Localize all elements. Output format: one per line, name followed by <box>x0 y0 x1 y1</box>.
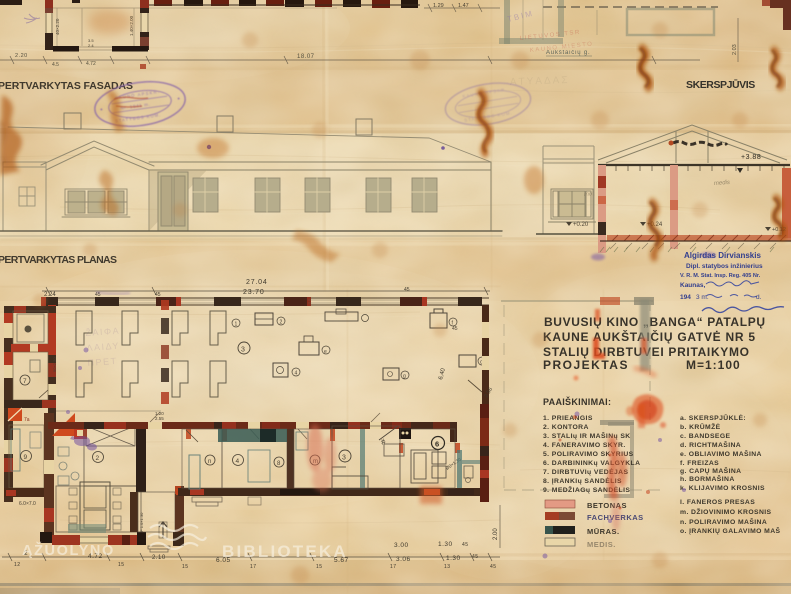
svg-text:90×2.20: 90×2.20 <box>52 357 57 372</box>
svg-text:PAAIŠKINIMAI:: PAAIŠKINIMAI: <box>543 396 611 407</box>
svg-text:3: 3 <box>241 347 245 354</box>
svg-text:17: 17 <box>390 564 397 570</box>
svg-text:1.29: 1.29 <box>433 3 444 9</box>
svg-text:1.30: 1.30 <box>446 555 461 562</box>
svg-text:l. FANEROS PRESAS: l. FANEROS PRESAS <box>680 499 755 506</box>
svg-text:SKERSPJŪVIS: SKERSPJŪVIS <box>686 79 756 91</box>
svg-text:k. KLIJAVIMO KROSNIS: k. KLIJAVIMO KROSNIS <box>680 485 765 492</box>
svg-text:15: 15 <box>118 562 125 568</box>
svg-text:1.47: 1.47 <box>458 3 469 9</box>
svg-text:n. POLIRAVIMO MAŠINA: n. POLIRAVIMO MAŠINA <box>680 517 767 526</box>
svg-text:2.55: 2.55 <box>155 416 164 421</box>
svg-text:f. FREIZAS: f. FREIZAS <box>680 460 719 467</box>
svg-text:BUVUSIŲ KINO „BANGA“ PATALPŲ: BUVUSIŲ KINO „BANGA“ PATALPŲ <box>544 315 766 329</box>
svg-text:3. STALIų IR MAŠINų SK: 3. STALIų IR MAŠINų SK <box>543 431 631 440</box>
svg-text:1. PRIEANGIS: 1. PRIEANGIS <box>543 415 593 422</box>
svg-text:+3.88: +3.88 <box>741 154 761 161</box>
svg-text:b. KRŪMŽĖ: b. KRŪMŽĖ <box>680 422 721 431</box>
svg-text:45: 45 <box>472 554 479 560</box>
svg-text:M=1:100: M=1:100 <box>686 358 741 372</box>
svg-text:45: 45 <box>452 326 458 332</box>
svg-text:7. DIRBTUVIų VEDĖJAS: 7. DIRBTUVIų VEDĖJAS <box>543 468 628 476</box>
svg-text:15: 15 <box>182 564 189 570</box>
svg-text:d.: d. <box>756 294 762 301</box>
svg-text:m. DŽIOVINIMO KROSNIS: m. DŽIOVINIMO KROSNIS <box>680 507 772 516</box>
svg-text:4: 4 <box>295 371 298 377</box>
svg-text:PROJEKTAS: PROJEKTAS <box>543 358 629 372</box>
svg-text:2.10: 2.10 <box>152 555 166 561</box>
svg-text:Dipl. statybos inžinierius: Dipl. statybos inžinierius <box>686 263 763 270</box>
svg-text:13: 13 <box>444 564 451 570</box>
svg-text:Kaunas,: Kaunas, <box>680 282 705 289</box>
svg-text:1: 1 <box>235 322 238 328</box>
svg-text:6.0×7.0: 6.0×7.0 <box>19 501 36 507</box>
svg-text:g. CAPŲ MAŠINA: g. CAPŲ MAŠINA <box>680 466 742 475</box>
svg-text:n: n <box>208 459 211 465</box>
svg-text:18.07: 18.07 <box>297 54 315 60</box>
svg-text:45: 45 <box>490 564 497 570</box>
svg-text:e. OBLIAVIMO MAŠINA: e. OBLIAVIMO MAŠINA <box>680 449 762 458</box>
svg-text:ĄŽUOLYNO: ĄŽUOLYNO <box>22 541 115 559</box>
svg-text:+0.20: +0.20 <box>573 222 589 228</box>
svg-text:2: 2 <box>96 455 100 462</box>
svg-text:4.72: 4.72 <box>86 61 96 67</box>
svg-text:194: 194 <box>680 294 691 301</box>
svg-text:12: 12 <box>14 562 21 568</box>
svg-text:P 1.0×1.30: P 1.0×1.30 <box>139 512 144 532</box>
svg-text:PERTVARKYTAS FASADAS: PERTVARKYTAS FASADAS <box>0 80 134 92</box>
svg-text:g: g <box>403 374 406 380</box>
svg-text:3.06: 3.06 <box>396 556 411 563</box>
svg-text:V. R. M. Stat. Insp. Reg. 405: V. R. M. Stat. Insp. Reg. 405 Nr. <box>680 273 761 279</box>
svg-text:o. ĮRANKIŲ GALAVIMO MAŠ: o. ĮRANKIŲ GALAVIMO MAŠ <box>680 526 781 535</box>
svg-text:BIBLIOTEKA: BIBLIOTEKA <box>222 542 348 561</box>
svg-text:40×2.20: 40×2.20 <box>55 18 60 35</box>
svg-text:7: 7 <box>23 378 27 385</box>
svg-text:4: 4 <box>236 458 240 465</box>
svg-text:MEDIS.: MEDIS. <box>587 540 616 549</box>
svg-text:Algirdas Dirvianskis: Algirdas Dirvianskis <box>684 251 761 260</box>
svg-text:2.4: 2.4 <box>88 43 94 48</box>
svg-text:e: e <box>324 349 327 355</box>
svg-text:27.04: 27.04 <box>246 279 268 286</box>
svg-text:medis: medis <box>714 180 730 187</box>
svg-text:9. MEDŽIAGų SANDĖLIS: 9. MEDŽIAGų SANDĖLIS <box>543 485 630 494</box>
svg-text:mol.: mol. <box>584 191 596 198</box>
svg-text:2.20: 2.20 <box>15 53 28 59</box>
svg-text:2.03: 2.03 <box>732 44 738 55</box>
svg-text:ΠPΕΤ: ΠPΕΤ <box>87 356 118 368</box>
svg-text:6: 6 <box>435 440 439 449</box>
svg-text:45: 45 <box>462 542 469 548</box>
svg-text:d. RICHTMAŠINA: d. RICHTMAŠINA <box>680 440 741 449</box>
svg-text:3.00: 3.00 <box>394 542 409 549</box>
svg-text:23.70: 23.70 <box>243 289 265 296</box>
svg-text:9: 9 <box>24 454 28 461</box>
svg-text:c. BANDSEGE: c. BANDSEGE <box>680 433 731 440</box>
svg-text:h. BORMAŠINA: h. BORMAŠINA <box>680 474 735 483</box>
svg-text:2. KONTORA: 2. KONTORA <box>543 424 589 431</box>
svg-text:4.5: 4.5 <box>52 62 59 68</box>
svg-text:7a: 7a <box>24 417 30 423</box>
svg-text:1.30: 1.30 <box>438 541 453 548</box>
svg-text:45: 45 <box>404 287 410 293</box>
svg-text:a. SKERSPJŪKLĖ:: a. SKERSPJŪKLĖ: <box>680 414 746 422</box>
svg-text:15: 15 <box>316 564 323 570</box>
svg-text:PERTVARKYTAS PLANAS: PERTVARKYTAS PLANAS <box>0 254 118 266</box>
svg-text:3: 3 <box>342 455 346 462</box>
svg-text:2.00: 2.00 <box>493 528 499 540</box>
svg-text:17: 17 <box>250 564 257 570</box>
svg-text:2: 2 <box>280 320 283 326</box>
